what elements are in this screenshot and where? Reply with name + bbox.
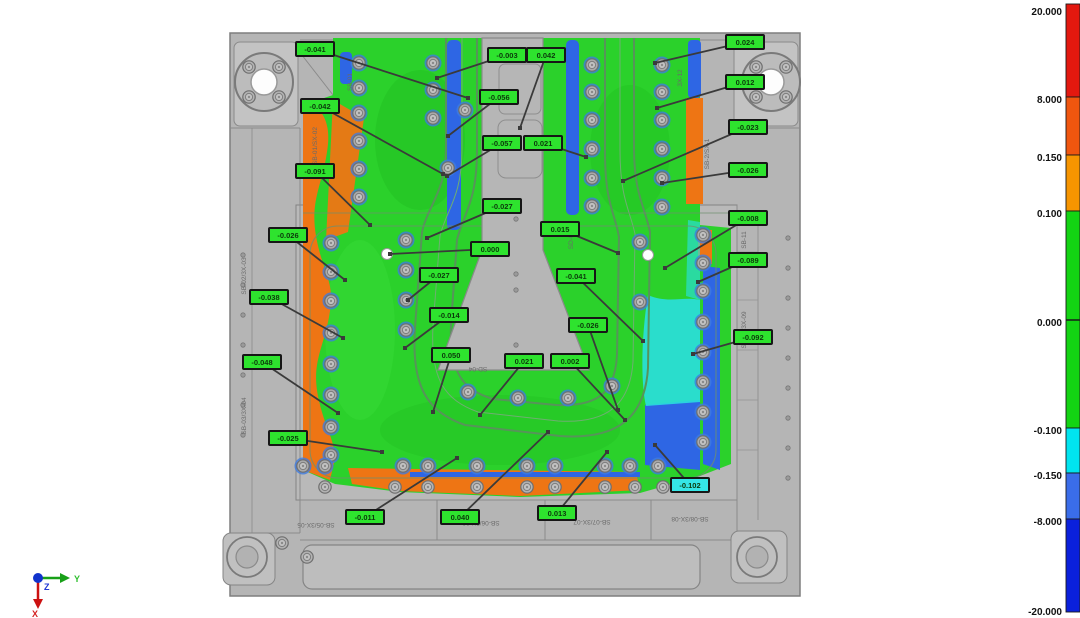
screw — [471, 481, 483, 493]
annotation-value: -0.056 — [488, 93, 509, 102]
leader-endpoint — [441, 172, 445, 176]
leader-endpoint — [655, 106, 659, 110]
screw — [521, 481, 533, 493]
reference-sphere — [643, 250, 654, 261]
pin-hole — [241, 343, 245, 347]
screw — [426, 111, 441, 126]
leader-endpoint — [653, 61, 657, 65]
pin-hole — [786, 296, 790, 300]
annotation-value: -0.102 — [679, 481, 700, 490]
scale-segment-mid-blue — [1066, 473, 1080, 519]
leader-endpoint — [380, 450, 384, 454]
region-id: SB-03/3X-04 — [241, 397, 248, 435]
screw — [389, 481, 401, 493]
annotation-value: -0.027 — [428, 271, 449, 280]
screw — [426, 56, 441, 71]
screw — [396, 459, 411, 474]
region-id: 3X-12 — [677, 69, 684, 87]
scale-segment-red — [1066, 4, 1080, 97]
screw — [696, 405, 711, 420]
screw — [273, 61, 285, 73]
screw — [461, 385, 476, 400]
leader-endpoint — [623, 418, 627, 422]
screw — [352, 190, 367, 205]
screw — [655, 142, 670, 157]
annotation-value: 0.024 — [736, 38, 756, 47]
screw — [655, 85, 670, 100]
leader-endpoint — [368, 223, 372, 227]
screw — [585, 199, 600, 214]
scale-segment-deep-blue — [1066, 519, 1080, 612]
x-axis-label: X — [32, 609, 38, 618]
screw — [657, 481, 669, 493]
screw — [324, 388, 339, 403]
screw — [296, 459, 311, 474]
screw — [750, 91, 762, 103]
annotation-value: 0.012 — [736, 78, 755, 87]
region-id: SD-04 — [468, 365, 487, 372]
scale-tick-label: 8.000 — [1037, 95, 1062, 106]
scale-tick-label: 0.000 — [1037, 318, 1062, 329]
leader-endpoint — [663, 266, 667, 270]
pin-hole — [241, 313, 245, 317]
coordinate-triad: Y X Z — [32, 573, 80, 618]
scale-segment-orange — [1066, 155, 1080, 211]
scale-tick-label: 0.150 — [1037, 153, 1062, 164]
screw — [352, 134, 367, 149]
deviation-cyan-region — [642, 295, 700, 406]
screw — [422, 481, 434, 493]
annotation-value: 0.021 — [515, 357, 534, 366]
leader-endpoint — [388, 252, 392, 256]
screw — [696, 375, 711, 390]
scale-segment-cyan — [1066, 428, 1080, 473]
annotation-value: -0.003 — [496, 51, 517, 60]
annotation-value: 0.021 — [534, 139, 553, 148]
annotation-value: -0.038 — [258, 293, 279, 302]
scale-tick-label: -0.100 — [1034, 426, 1063, 437]
annotation-value: -0.023 — [737, 123, 758, 132]
annotation-value: -0.089 — [737, 256, 758, 265]
y-axis-arrow — [60, 573, 70, 583]
annotation-value: -0.014 — [438, 311, 460, 320]
screw — [352, 162, 367, 177]
region-id: SB-08/3X-08 — [671, 515, 709, 522]
pin-hole — [786, 356, 790, 360]
screw — [319, 481, 331, 493]
screw — [696, 315, 711, 330]
corner-locator-bottom-left — [227, 537, 267, 577]
pin-hole — [786, 476, 790, 480]
screw — [585, 58, 600, 73]
leader-endpoint — [616, 251, 620, 255]
leader-endpoint — [435, 76, 439, 80]
pin-hole — [514, 217, 518, 221]
annotation-value: -0.026 — [737, 166, 758, 175]
deviation-color-scale: 20.0008.0000.1500.1000.000-0.100-0.150-8… — [1028, 4, 1080, 618]
region-id: SB-02/3X-03 — [241, 257, 248, 295]
screw — [399, 233, 414, 248]
leader-endpoint — [546, 430, 550, 434]
screw — [324, 357, 339, 372]
leader-endpoint — [641, 339, 645, 343]
pin-hole — [514, 272, 518, 276]
pin-hole — [241, 373, 245, 377]
screw — [696, 228, 711, 243]
annotation-value: -0.057 — [491, 139, 512, 148]
leader-endpoint — [445, 174, 449, 178]
screw — [549, 481, 561, 493]
z-axis-label: Z — [44, 582, 50, 592]
screw — [470, 459, 485, 474]
screw — [780, 91, 792, 103]
screw — [273, 91, 285, 103]
screw — [780, 61, 792, 73]
screw — [548, 459, 563, 474]
screw — [352, 106, 367, 121]
screw — [324, 420, 339, 435]
leader-endpoint — [336, 411, 340, 415]
screw — [243, 91, 255, 103]
leader-endpoint — [621, 179, 625, 183]
screw — [750, 61, 762, 73]
screw — [243, 61, 255, 73]
pin-hole — [786, 326, 790, 330]
leader-endpoint — [455, 456, 459, 460]
screw — [421, 459, 436, 474]
screw — [599, 481, 611, 493]
annotation-value: 0.013 — [548, 509, 567, 518]
leader-endpoint — [691, 352, 695, 356]
annotation-value: 0.042 — [537, 51, 556, 60]
annotation-value: -0.041 — [304, 45, 325, 54]
screw — [324, 236, 339, 251]
annotation-value: -0.092 — [742, 333, 763, 342]
leader-endpoint — [446, 134, 450, 138]
leader-endpoint — [696, 280, 700, 284]
screw — [458, 103, 473, 118]
screw — [623, 459, 638, 474]
screw — [520, 459, 535, 474]
annotation-value: 0.015 — [551, 225, 570, 234]
screw — [633, 235, 648, 250]
y-axis-label: Y — [74, 574, 80, 584]
annotation-value: -0.025 — [277, 434, 298, 443]
scale-tick-label: 0.100 — [1037, 209, 1062, 220]
leader-endpoint — [466, 96, 470, 100]
region-id: SB-01 — [347, 73, 354, 91]
screw — [585, 142, 600, 157]
annotation-value: -0.041 — [565, 272, 586, 281]
scale-tick-label: -8.000 — [1034, 517, 1063, 528]
screw — [318, 459, 333, 474]
screw — [696, 284, 711, 299]
leader-endpoint — [341, 336, 345, 340]
screw — [585, 85, 600, 100]
region-id: SB-07/3X-07 — [573, 518, 611, 525]
screw — [399, 263, 414, 278]
leader-endpoint — [343, 278, 347, 282]
pin-hole — [786, 446, 790, 450]
annotation-value: 0.040 — [451, 513, 470, 522]
leader-endpoint — [431, 410, 435, 414]
z-axis-dot — [33, 573, 43, 583]
x-axis-arrow — [33, 599, 43, 609]
annotation-value: -0.027 — [491, 202, 512, 211]
leader-endpoint — [653, 443, 657, 447]
annotation-value: 0.000 — [481, 245, 500, 254]
corner-locator-bottom-right — [737, 537, 777, 577]
annotation-value: -0.042 — [309, 102, 330, 111]
annotation-value: -0.026 — [577, 321, 598, 330]
region-id: SB-11 — [741, 231, 748, 249]
pin-hole — [786, 266, 790, 270]
screw — [399, 323, 414, 338]
leader-endpoint — [425, 236, 429, 240]
scale-tick-label: -0.150 — [1034, 471, 1063, 482]
screw — [511, 391, 526, 406]
screw — [276, 537, 288, 549]
screw — [585, 171, 600, 186]
leader-endpoint — [518, 126, 522, 130]
screw — [655, 200, 670, 215]
leader-endpoint — [660, 181, 664, 185]
pin-hole — [786, 416, 790, 420]
region-id: SB-05/3X-05 — [297, 521, 335, 528]
scale-segment-orange-red — [1066, 97, 1080, 155]
annotation-value: -0.011 — [355, 513, 376, 522]
screw — [696, 256, 711, 271]
pin-hole — [514, 288, 518, 292]
annotation-value: -0.048 — [251, 358, 272, 367]
pin-hole — [786, 236, 790, 240]
pin-hole — [241, 253, 245, 257]
annotation-value: 0.002 — [561, 357, 580, 366]
leader-endpoint — [584, 155, 588, 159]
scale-tick-label: 20.000 — [1031, 7, 1062, 18]
leader-endpoint — [478, 413, 482, 417]
screw — [655, 113, 670, 128]
screw — [629, 481, 641, 493]
scale-tick-label: -20.000 — [1028, 607, 1062, 618]
pin-hole — [514, 343, 518, 347]
annotation-value: -0.026 — [277, 231, 298, 240]
annotation-value: -0.008 — [737, 214, 758, 223]
region-id: SB-01/SX-02 — [312, 127, 319, 165]
corner-locator-top-left — [234, 42, 298, 126]
annotation-value: 0.050 — [442, 351, 461, 360]
inspection-viewport: SB-01SB-01/SX-02SB-02/3X-03SB-03/3X-043X… — [0, 0, 1080, 618]
screw — [651, 459, 666, 474]
pin-hole — [786, 386, 790, 390]
screw — [324, 294, 339, 309]
leader-endpoint — [605, 450, 609, 454]
annotation-value: -0.091 — [304, 167, 325, 176]
screw — [633, 295, 648, 310]
screw — [696, 435, 711, 450]
screw — [561, 391, 576, 406]
screw — [301, 551, 313, 563]
screw — [585, 113, 600, 128]
leader-endpoint — [403, 346, 407, 350]
leader-endpoint — [406, 298, 410, 302]
